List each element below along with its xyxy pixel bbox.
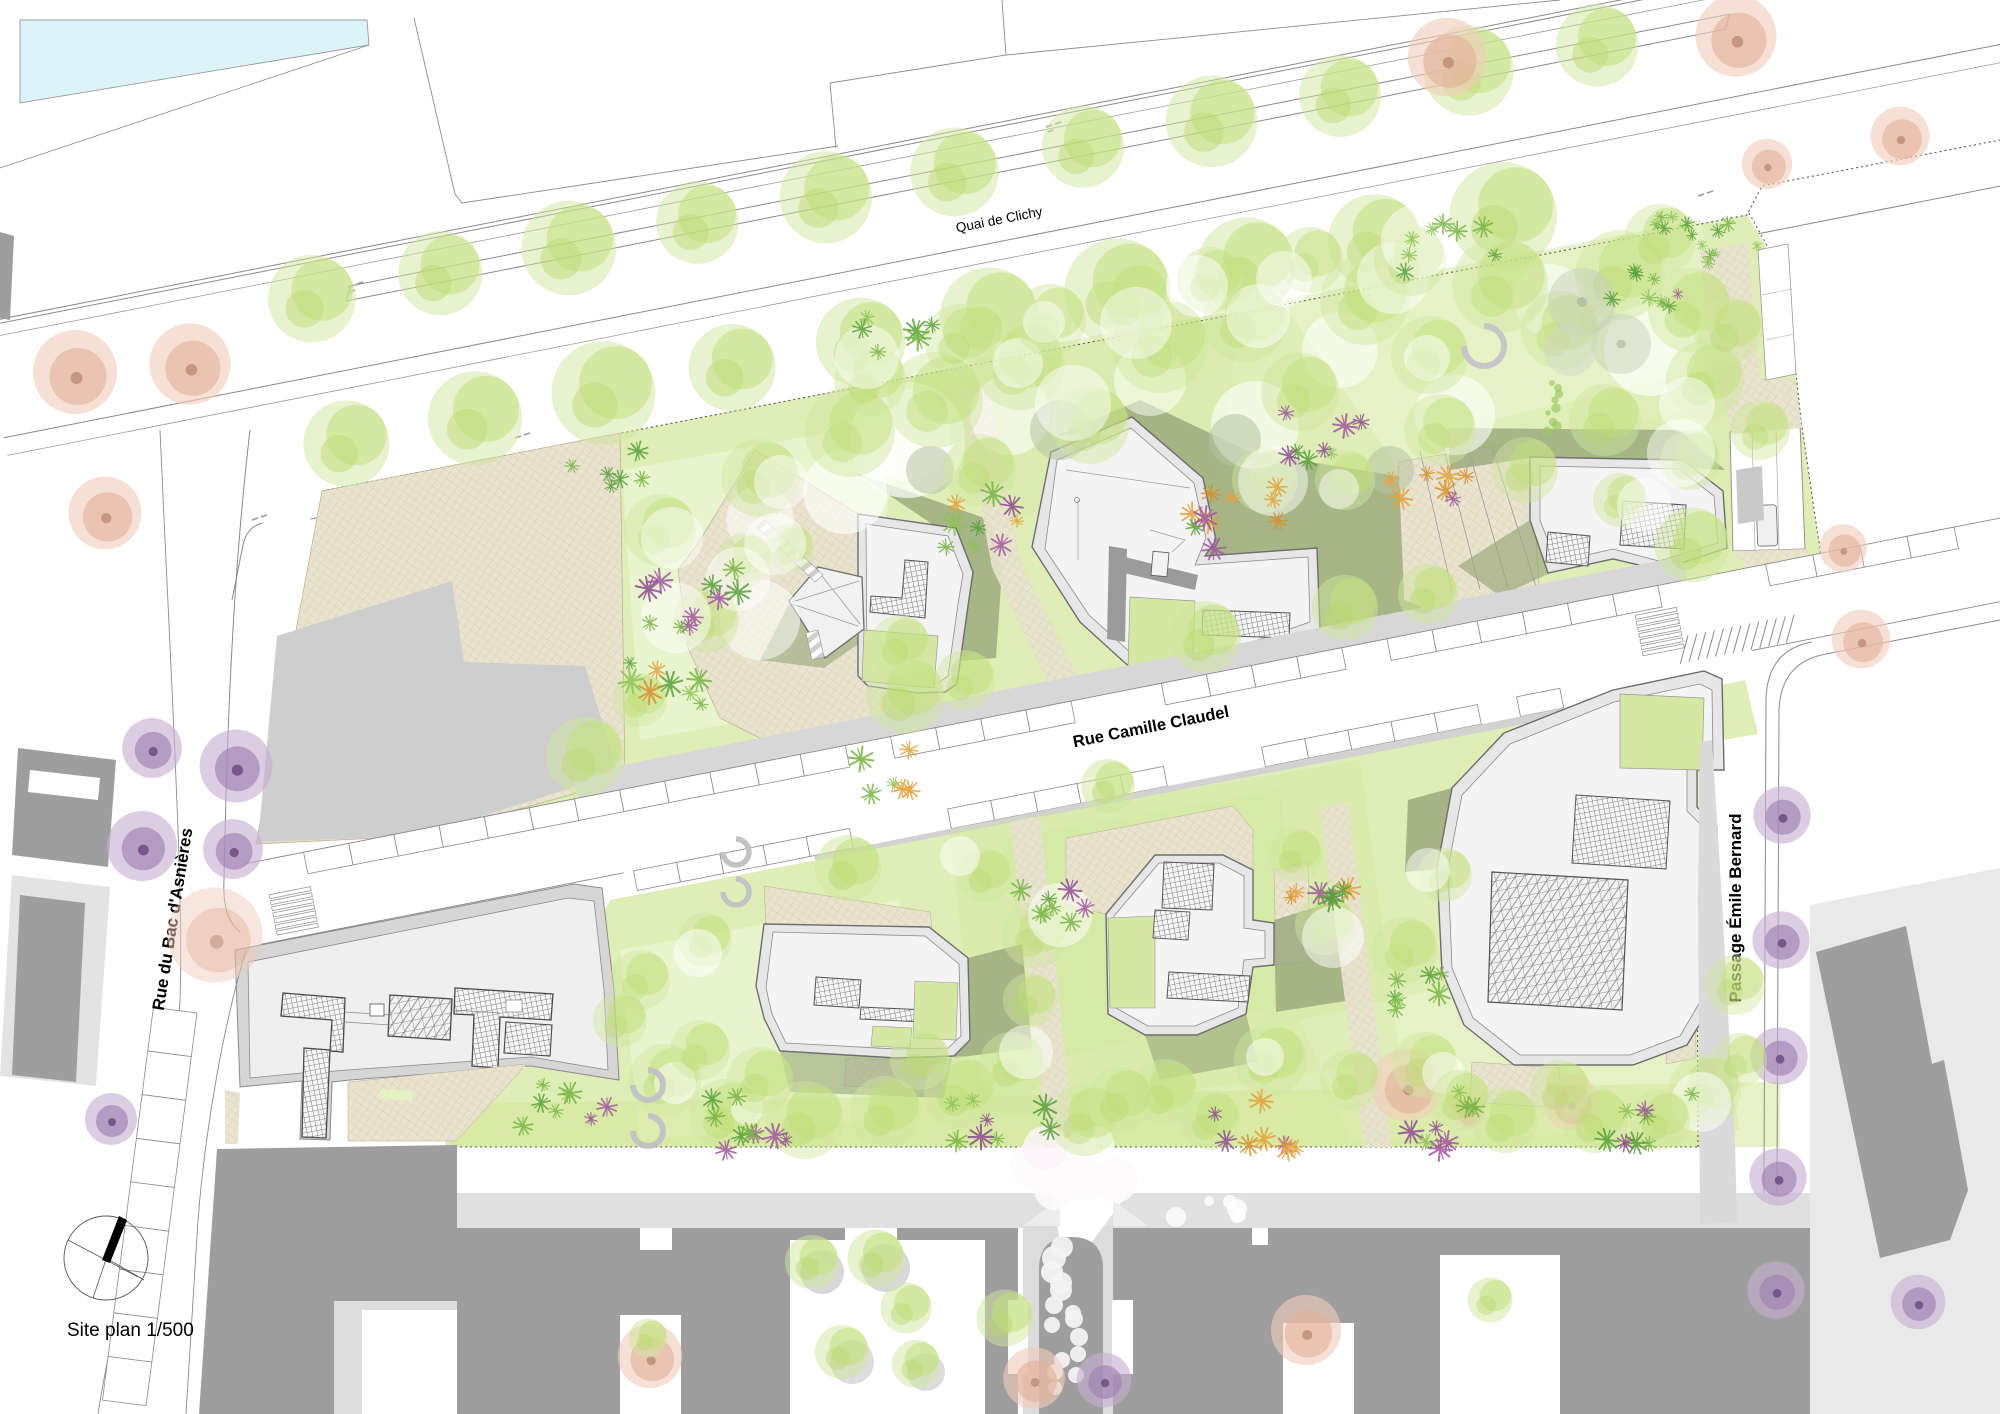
svg-text:Site plan 1/500: Site plan 1/500	[67, 1320, 194, 1341]
